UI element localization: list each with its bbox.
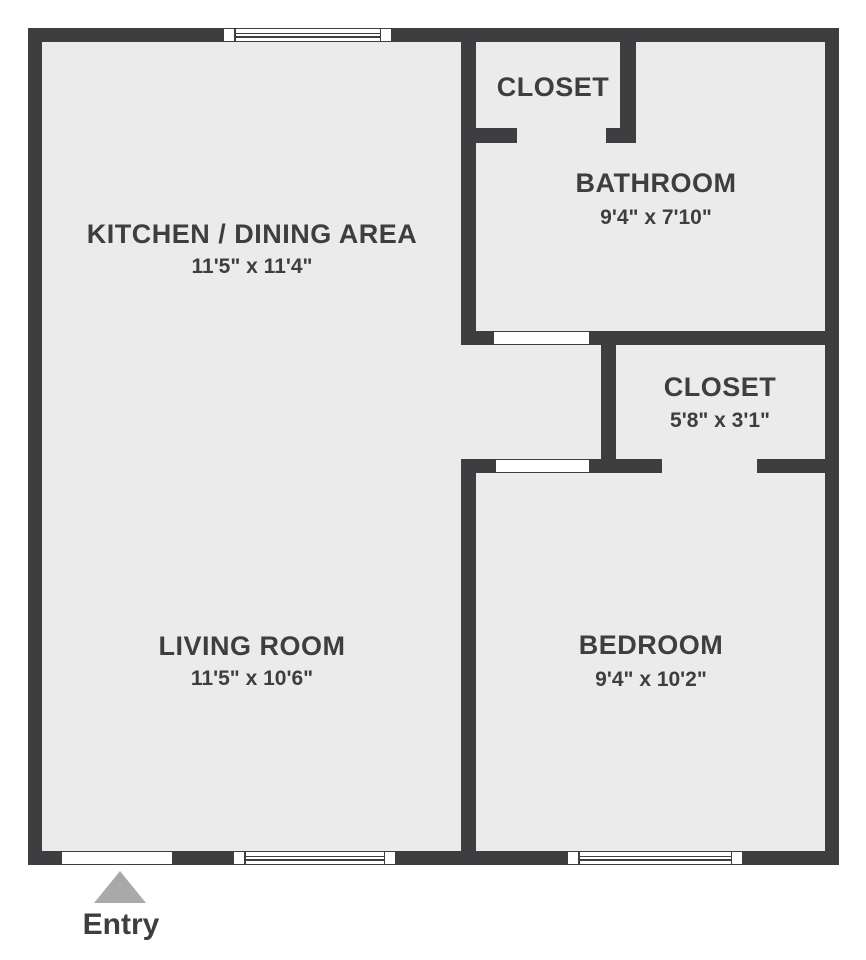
window-pane-line (245, 859, 384, 861)
window-frame-line (731, 852, 733, 864)
bedroom-dimensions: 9'4" x 10'2" (595, 669, 707, 690)
living-room-window-icon (233, 851, 396, 865)
window-pane-line (245, 856, 384, 858)
living-room-label: LIVING ROOM (159, 633, 346, 660)
wall-bedroom-closet-left (601, 331, 616, 473)
window-pane-line (579, 859, 731, 861)
window-pane-line (235, 33, 380, 35)
window-frame-line (234, 29, 236, 41)
kitchen-dining-dimensions: 11'5" x 11'4" (191, 256, 312, 277)
bedroom-door-opening (495, 459, 590, 473)
top-closet-label: CLOSET (497, 74, 610, 101)
kitchen-dining-label: KITCHEN / DINING AREA (87, 221, 418, 248)
wall-top-closet-right (620, 28, 636, 129)
window-pane-line (235, 36, 380, 38)
window-frame-line (380, 29, 382, 41)
wall-top-closet-jamb (606, 128, 636, 143)
bathroom-label: BATHROOM (576, 170, 737, 197)
kitchen-window-icon (223, 28, 392, 42)
entry-label: Entry (83, 910, 160, 940)
bedroom-closet-dimensions: 5'8" x 3'1" (670, 410, 770, 431)
bathroom-door-opening (493, 331, 590, 345)
wall-bedroom-top-middle (590, 459, 662, 473)
wall-living-bedroom-divider (461, 459, 476, 865)
wall-outer-top (28, 28, 839, 42)
living-room-dimensions: 11'5" x 10'6" (191, 668, 313, 689)
bedroom-closet-label: CLOSET (664, 374, 777, 401)
wall-bedroom-top-right (757, 459, 825, 473)
entry-door-opening (61, 851, 173, 865)
floor-area (42, 42, 825, 851)
wall-kitchen-bathroom-divider (461, 28, 476, 345)
window-pane-line (579, 856, 731, 858)
wall-outer-left (28, 28, 42, 865)
bedroom-label: BEDROOM (579, 632, 724, 659)
wall-top-closet-bottom (461, 128, 517, 143)
window-frame-line (384, 852, 386, 864)
entry-arrow-icon (94, 871, 146, 903)
floor-plan: KITCHEN / DINING AREA 11'5" x 11'4" CLOS… (0, 0, 866, 960)
window-frame-line (578, 852, 580, 864)
bathroom-dimensions: 9'4" x 7'10" (600, 207, 712, 228)
wall-outer-right (825, 28, 839, 865)
bedroom-window-icon (567, 851, 743, 865)
window-frame-line (244, 852, 246, 864)
